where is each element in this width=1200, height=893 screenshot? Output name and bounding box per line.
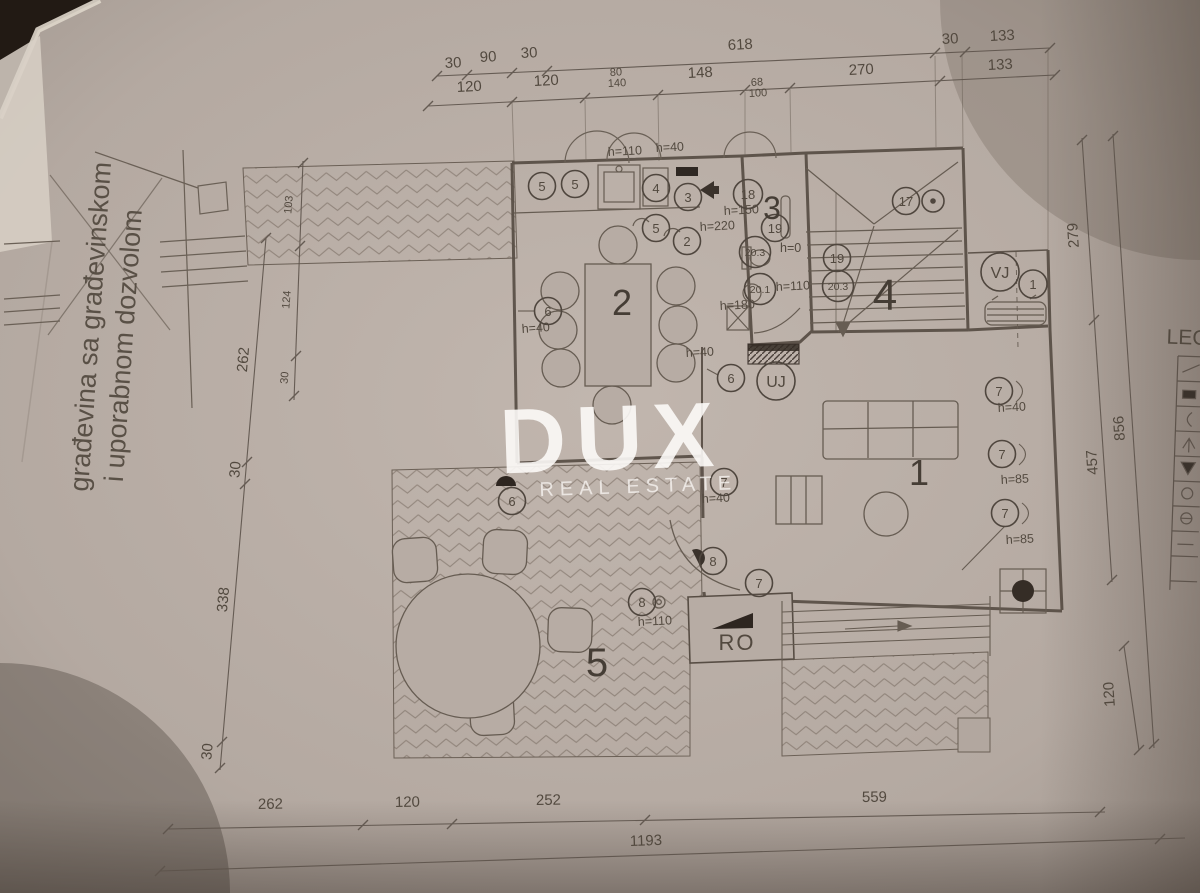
room-number-bath: 3 <box>763 190 781 226</box>
zone-vj: VJ <box>991 265 1010 282</box>
dim-label: 124 <box>280 290 294 309</box>
tag-number: 5 <box>652 221 659 236</box>
dim-label: 457 <box>1083 449 1102 475</box>
dim-label: 120 <box>395 794 420 811</box>
dim-label: 90 <box>479 48 497 66</box>
tag-number: 20.1 <box>750 284 771 296</box>
dim-label: 120 <box>533 72 559 90</box>
plant-icon <box>1012 580 1034 602</box>
dim-label: 148 <box>687 64 713 82</box>
tag-number: 17 <box>899 194 913 209</box>
dim-label: 252 <box>536 792 561 809</box>
tag-number: 5 <box>538 179 545 194</box>
dim-label: 30 <box>279 371 292 384</box>
tag-number: 20.3 <box>745 247 766 259</box>
height-label: h=150 <box>723 202 759 218</box>
height-label: h=110 <box>607 143 642 159</box>
tag-number: 4 <box>652 181 659 196</box>
dim-label: 120 <box>1100 681 1119 707</box>
dim-label: 559 <box>862 789 887 806</box>
dim-label: 100 <box>749 87 768 100</box>
height-label: h=40 <box>997 400 1026 415</box>
height-label: h=40 <box>655 140 684 155</box>
legend-symbol <box>1183 390 1196 398</box>
tag-number: 6 <box>508 494 515 509</box>
floor-plan-photo: 30 90 30 618 30 133 120 120 80 140 148 6… <box>0 0 1200 893</box>
tag-number: 19 <box>830 251 844 266</box>
dim-label: 279 <box>1064 222 1083 248</box>
watermark: DUX REAL ESTATE <box>498 383 738 502</box>
height-label: h=0 <box>780 241 801 255</box>
tag-number: 5 <box>571 177 578 192</box>
tag-number: 1 <box>1029 277 1036 292</box>
height-label: h=40 <box>521 320 550 336</box>
floor-plan-drawing: 30 90 30 618 30 133 120 120 80 140 148 6… <box>0 0 1200 893</box>
room-number-terrace: 5 <box>586 641 608 685</box>
tag-number: 20.3 <box>828 281 849 293</box>
height-label: h=40 <box>685 345 714 360</box>
dim-label: 103 <box>282 195 296 214</box>
dim-label: 133 <box>987 56 1013 74</box>
dim-label: 262 <box>258 796 283 813</box>
dim-label: 120 <box>456 78 482 96</box>
room-number-dining: 2 <box>612 282 632 323</box>
tag-number: 6 <box>727 371 734 386</box>
zone-uj: UJ <box>766 374 786 391</box>
dim-label: 30 <box>520 44 538 62</box>
legend-title: LEG <box>1166 326 1200 350</box>
dim-label: 856 <box>1110 415 1129 441</box>
zone-ro: RO <box>719 630 756 655</box>
height-label: h=220 <box>699 218 735 234</box>
terrace-table <box>396 574 540 718</box>
dim-label: 1193 <box>630 832 663 850</box>
tag-number: 7 <box>1001 506 1008 521</box>
dim-label: 262 <box>234 346 253 372</box>
tag-number: 18 <box>741 187 755 202</box>
entry-mat <box>748 344 799 364</box>
room-number-living: 1 <box>909 452 929 493</box>
dim-label: 30 <box>226 461 244 479</box>
height-label: h=110 <box>775 278 810 294</box>
tag-number: 8 <box>709 554 716 569</box>
tag-number: 2 <box>683 234 690 249</box>
dim-label: 30 <box>444 54 462 72</box>
tag-number: 7 <box>998 447 1005 462</box>
tag-number: 3 <box>684 190 691 205</box>
height-label: h=85 <box>1005 532 1034 547</box>
dim-label: 30 <box>198 743 216 761</box>
tag-number: 7 <box>995 384 1002 399</box>
dim-label: 338 <box>214 586 233 612</box>
tag-number: 6 <box>544 304 551 319</box>
height-label: h=180 <box>719 297 755 313</box>
tag-number: 8 <box>638 595 645 610</box>
dim-label: 618 <box>727 36 753 54</box>
room-number-stairs: 4 <box>873 271 897 320</box>
dim-label: 133 <box>989 27 1015 45</box>
dim-label: 140 <box>608 77 627 90</box>
dim-label: 270 <box>848 61 874 79</box>
dim-label: 30 <box>941 30 959 48</box>
height-label: h=85 <box>1000 472 1029 487</box>
tag-number: 7 <box>755 576 762 591</box>
